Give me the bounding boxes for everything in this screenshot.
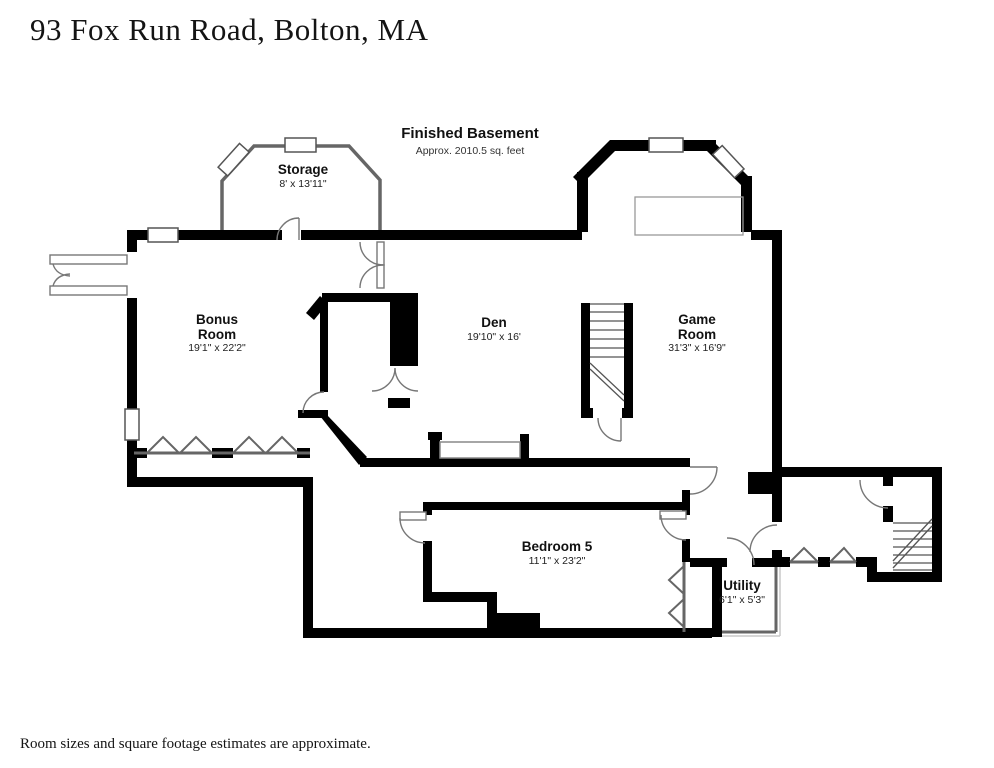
room-name: Storage bbox=[253, 163, 353, 178]
den-double-door-leaf bbox=[377, 242, 384, 265]
plan-title: Finished Basement bbox=[370, 126, 570, 143]
room-dimensions: 6'1" x 5'3" bbox=[694, 595, 790, 606]
room-name: Bedroom 5 bbox=[492, 540, 622, 555]
window-north bbox=[148, 228, 178, 242]
room-dimensions: 19'10" x 16' bbox=[439, 332, 549, 343]
room-label-storage: Storage 8' x 13'11" bbox=[253, 163, 353, 190]
bonus-hall-door bbox=[303, 392, 324, 413]
doors bbox=[50, 218, 888, 565]
room-dimensions: 19'1" x 22'2" bbox=[186, 343, 248, 354]
bedroom-door-leaf bbox=[660, 511, 686, 519]
room-label-bonus-room: Bonus Room 19'1" x 22'2" bbox=[186, 313, 248, 354]
den-double-door-leaf bbox=[377, 265, 384, 288]
room-label-bedroom-5: Bedroom 5 11'1" x 23'2" bbox=[492, 540, 622, 567]
room-name: Game Room bbox=[666, 313, 728, 342]
window-storage-diagonal bbox=[218, 143, 249, 175]
overhead-outline bbox=[635, 197, 743, 235]
room-name: Den bbox=[439, 316, 549, 331]
footer-note: Room sizes and square footage estimates … bbox=[20, 736, 371, 753]
room-label-game-room: Game Room 31'3" x 16'9" bbox=[666, 313, 728, 354]
window-gameroom-diagonal bbox=[713, 146, 744, 178]
room-dimensions: 31'3" x 16'9" bbox=[666, 343, 728, 354]
room-name: Bonus Room bbox=[186, 313, 248, 342]
stairs-door bbox=[598, 418, 621, 441]
room-label-den: Den 19'10" x 16' bbox=[439, 316, 549, 343]
chimney-mass bbox=[390, 293, 418, 366]
support-pillar bbox=[748, 472, 773, 494]
rear-hall-door bbox=[690, 467, 717, 494]
windows bbox=[125, 138, 744, 440]
window-storage-top bbox=[285, 138, 316, 152]
stair-railing bbox=[440, 442, 520, 458]
main-staircase bbox=[590, 304, 624, 401]
exterior-double-door-leaf bbox=[50, 255, 127, 264]
floorplan-page: 93 Fox Run Road, Bolton, MA bbox=[0, 0, 994, 768]
exterior-double-door-leaf bbox=[50, 286, 127, 295]
plan-title-block: Finished Basement Approx. 2010.5 sq. fee… bbox=[370, 126, 570, 157]
room-name: Utility bbox=[694, 579, 790, 594]
floorplan-drawing bbox=[0, 0, 994, 768]
room-label-utility: Utility 6'1" x 5'3" bbox=[694, 579, 790, 606]
room-dimensions: 11'1" x 23'2" bbox=[492, 556, 622, 567]
foundation-mass bbox=[492, 613, 540, 630]
basement-exit-stairs bbox=[893, 519, 932, 570]
closet-double-doors bbox=[372, 368, 418, 391]
window-gameroom-top bbox=[649, 138, 683, 152]
plan-area-note: Approx. 2010.5 sq. feet bbox=[370, 145, 570, 157]
bedroom-door-leaf bbox=[400, 512, 426, 520]
window-west bbox=[125, 409, 139, 440]
room-dimensions: 8' x 13'11" bbox=[253, 179, 353, 190]
